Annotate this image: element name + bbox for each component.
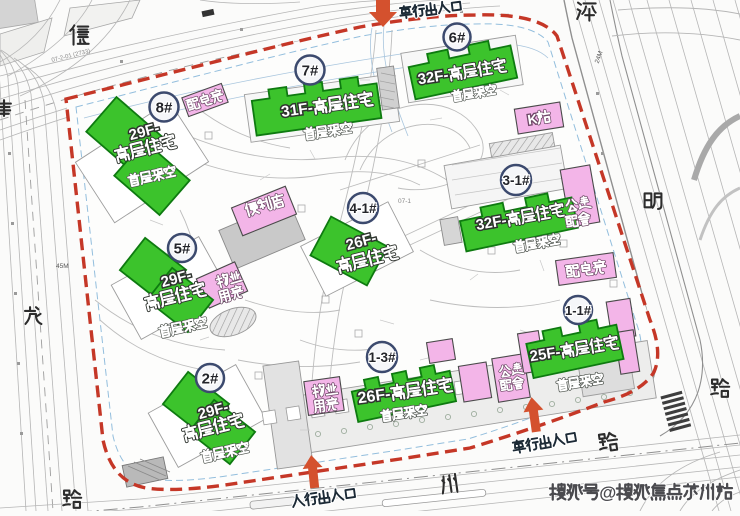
svg-text:3-1#: 3-1#	[502, 173, 530, 188]
svg-text:45M: 45M	[56, 263, 69, 270]
svg-text:@: @	[599, 482, 616, 502]
svg-text:4-1#: 4-1#	[349, 201, 377, 216]
svg-text:07-1: 07-1	[398, 198, 411, 205]
svg-text:5#: 5#	[174, 241, 191, 258]
svg-text:1-3#: 1-3#	[368, 350, 396, 365]
svg-text:6#: 6#	[449, 30, 466, 47]
svg-text:7#: 7#	[302, 63, 319, 80]
svg-text:1-1#: 1-1#	[565, 303, 592, 318]
svg-text:2#: 2#	[202, 371, 219, 388]
svg-text:8#: 8#	[156, 100, 173, 117]
